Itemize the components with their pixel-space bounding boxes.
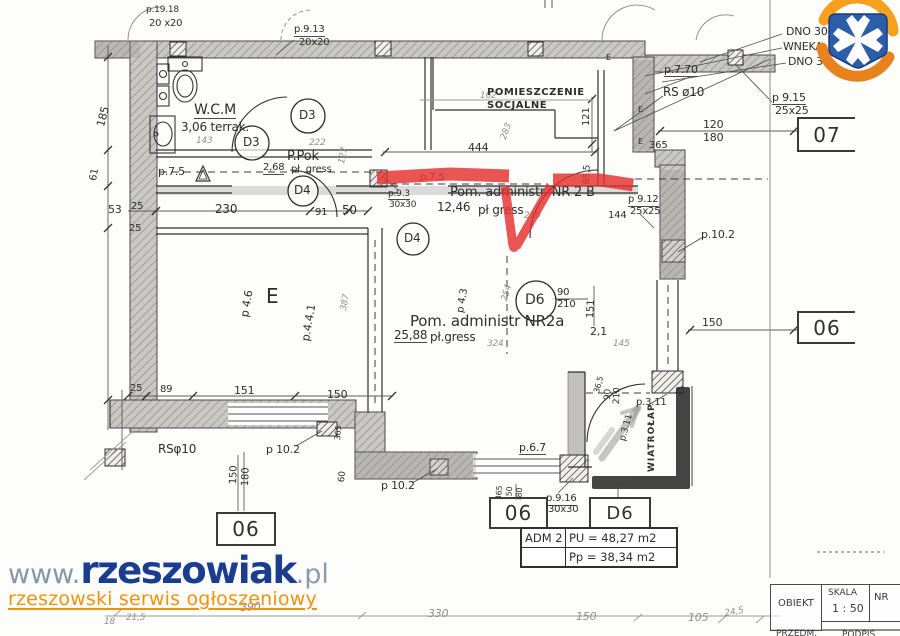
floor-plan-scan: p.19.18 20 x20 p.9.13 20x20 DNO 30 WNEKA… [0, 0, 900, 636]
watermark: www.rzeszowiak.pl rzeszowski serwis ogło… [8, 552, 329, 609]
rzeszowiak-logo [822, 0, 893, 76]
watermark-tagline: rzeszowski serwis ogłoszeniowy [8, 590, 329, 609]
red-marker-annotation [377, 174, 633, 252]
watermark-tld: .pl [296, 559, 329, 590]
watermark-url: www.rzeszowiak.pl [8, 552, 329, 589]
watermark-www: www. [8, 559, 80, 590]
watermark-brand: rzeszowiak [80, 549, 295, 592]
annotations-overlay [0, 0, 900, 636]
